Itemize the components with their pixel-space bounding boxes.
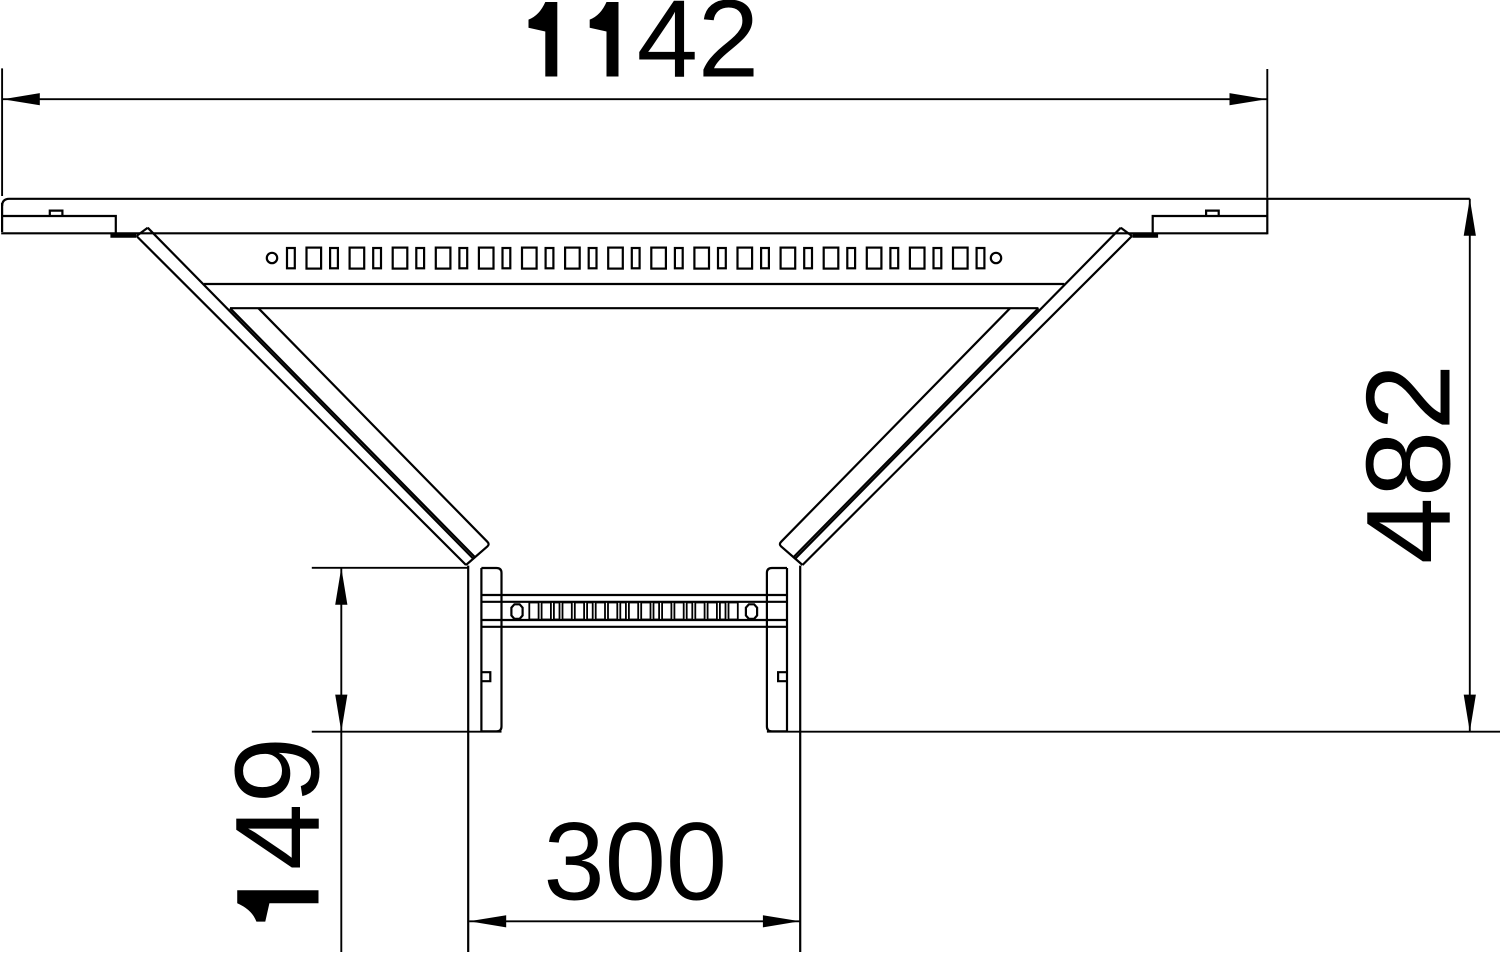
svg-text:42: 42 xyxy=(637,0,759,101)
svg-text:300: 300 xyxy=(544,801,728,924)
svg-text:482: 482 xyxy=(1342,364,1476,564)
svg-text:49: 49 xyxy=(211,737,345,870)
